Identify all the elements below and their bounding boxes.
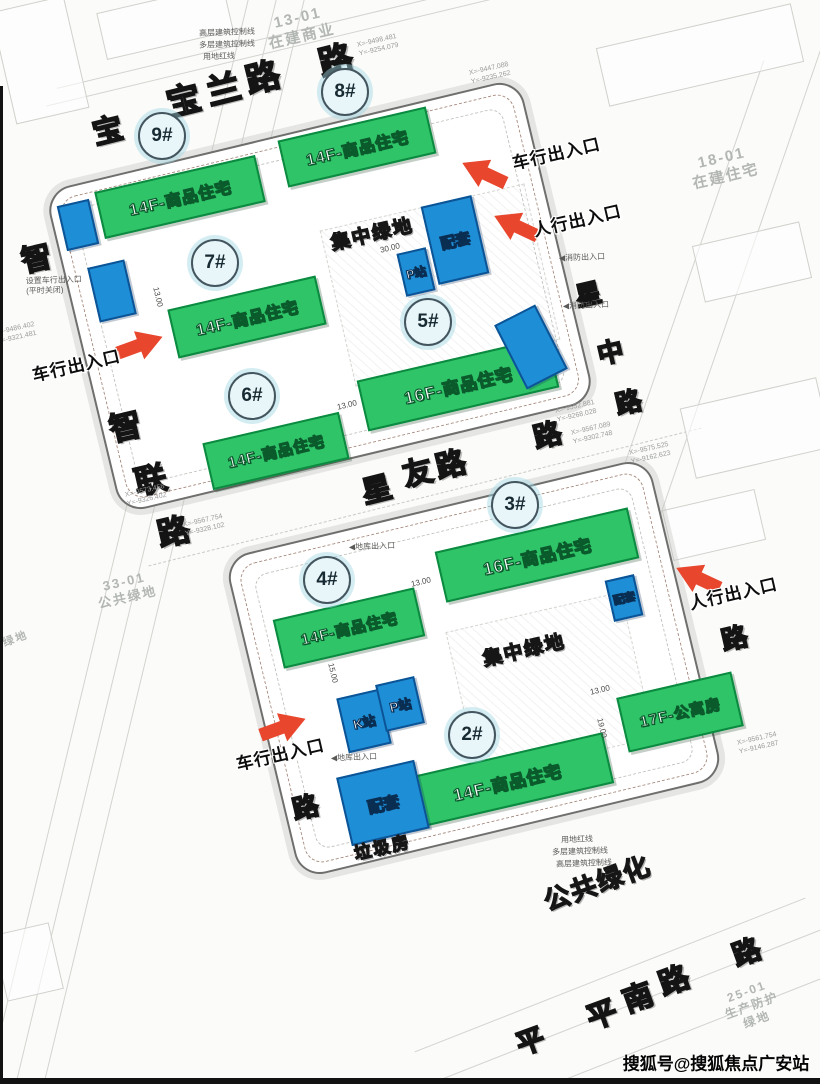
image-bottom-edge bbox=[0, 1078, 820, 1084]
watermark: 搜狐号@搜狐焦点广安站 bbox=[623, 1050, 810, 1075]
entrance-label: 人行出入口 bbox=[530, 197, 623, 242]
entrance-label: 车行出入口 bbox=[29, 342, 122, 387]
image-left-edge bbox=[0, 86, 3, 1084]
entrances: 车行出入口人行出入口车行出入口人行出入口车行出入口 bbox=[0, 0, 820, 1084]
entrance-label: 车行出入口 bbox=[509, 130, 602, 175]
site-plan: 宝宝兰路路智智联路路星友路路星中路路平平南路路 13-01 在建商业18-01 … bbox=[0, 0, 820, 1084]
entrance-label: 车行出入口 bbox=[233, 731, 326, 776]
entrance-arrow-icon bbox=[456, 149, 512, 196]
